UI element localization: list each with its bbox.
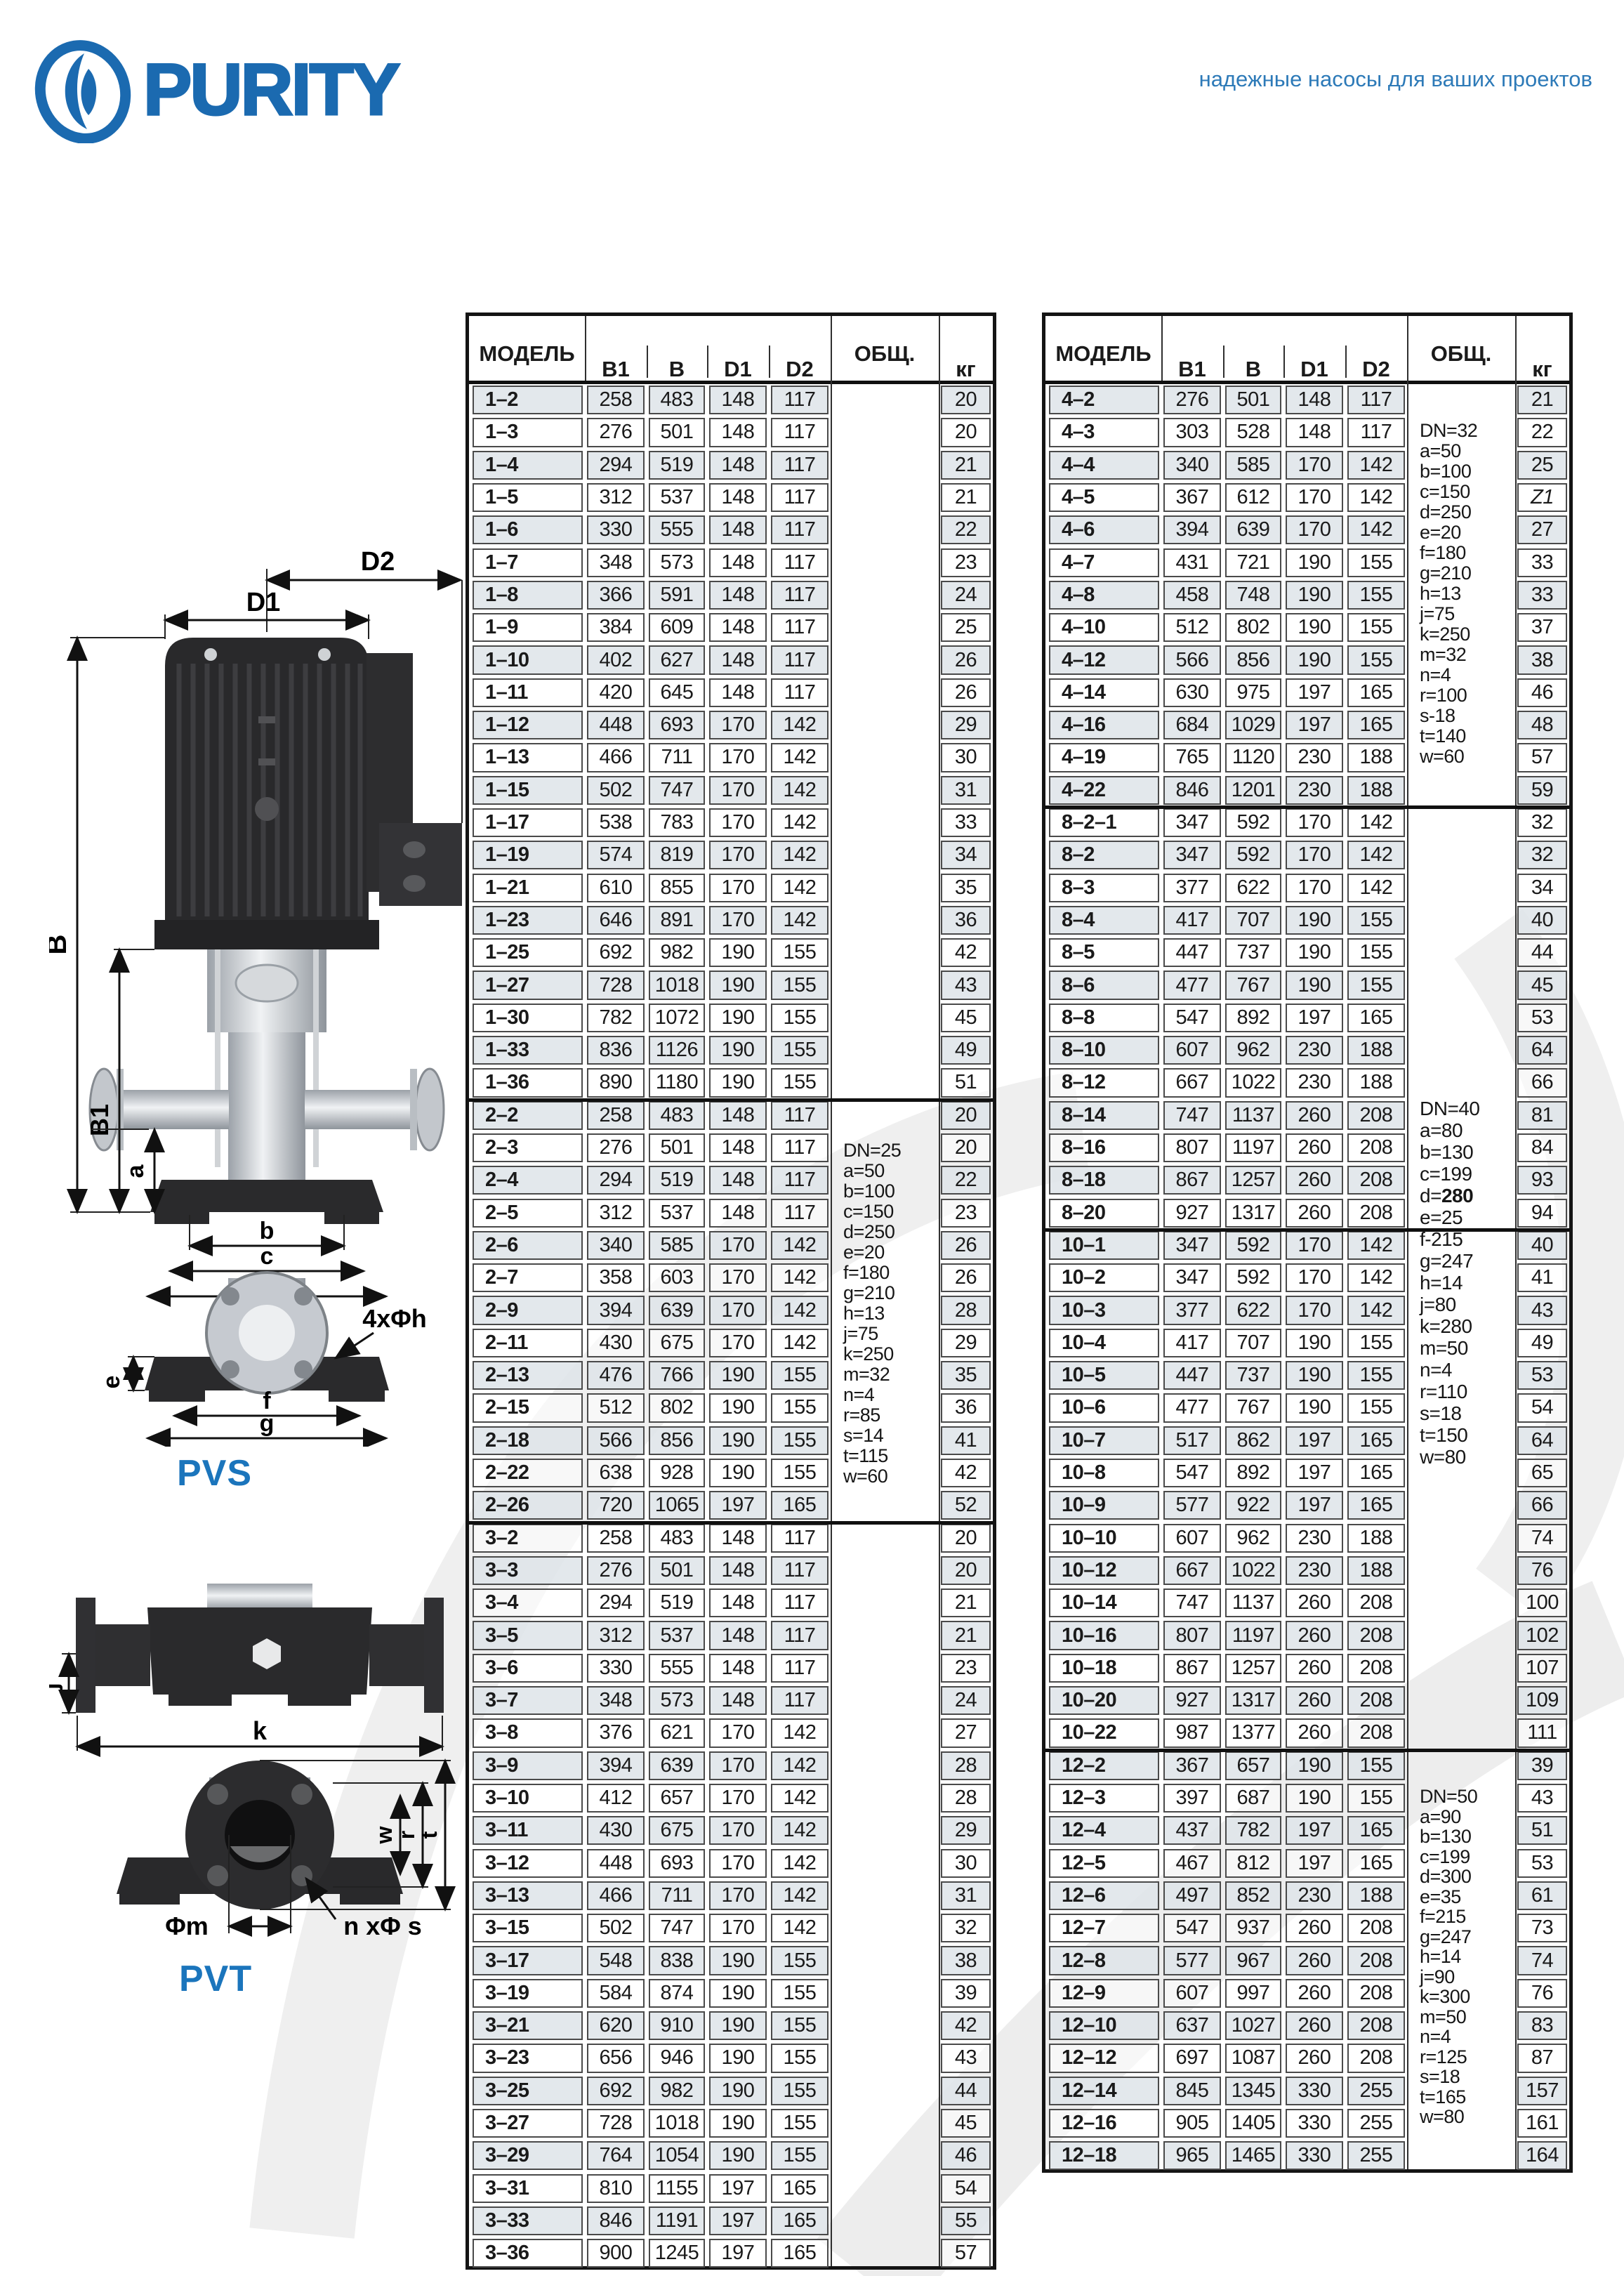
b-cell: 997 [1225,1979,1281,2008]
b-cell: 693 [649,1849,705,1878]
kg-cell: 30 [941,743,991,772]
kg-cell: 100 [1517,1588,1567,1617]
d1-cell: 260 [1286,1588,1343,1617]
b1-cell: 867 [1163,1654,1221,1683]
d1-cell: 260 [1286,1914,1343,1942]
model-cell: 2–3 [473,1133,583,1162]
d2-cell: 142 [771,1849,828,1878]
b1-cell: 577 [1163,1491,1221,1520]
b-cell: 928 [649,1459,705,1487]
d2-cell: 208 [1347,2011,1405,2040]
d1-cell: 148 [709,645,767,674]
model-cell: 8–14 [1049,1101,1159,1130]
kg-cell: 22 [1517,418,1567,447]
model-cell: 3–17 [473,1946,583,1975]
b-cell: 603 [649,1263,705,1292]
kg-cell: 51 [1517,1816,1567,1845]
model-cell: 1–5 [473,483,583,512]
kg-cell: 32 [1517,841,1567,869]
b1-cell: 347 [1163,1263,1221,1292]
dim-label-nxphis: n xΦ s [343,1912,422,1940]
d2-cell: 208 [1347,1588,1405,1617]
kg-cell: 37 [1517,613,1567,642]
b1-cell: 566 [1163,645,1221,674]
b-cell: 838 [649,1946,705,1975]
kg-cell: 55 [941,2206,991,2235]
b1-cell: 836 [587,1036,645,1065]
b1-cell: 340 [587,1231,645,1260]
b-cell: 1029 [1225,711,1281,739]
d2-cell: 117 [771,678,828,707]
d2-cell: 208 [1347,1133,1405,1162]
model-cell: 1–3 [473,418,583,447]
d2-cell: 155 [771,2141,828,2170]
b-cell: 483 [649,386,705,414]
model-cell: 3–21 [473,2011,583,2040]
model-cell: 4–14 [1049,678,1159,707]
b-cell: 501 [649,418,705,447]
d1-cell: 190 [1286,581,1343,610]
b-cell: 537 [649,1621,705,1650]
dim-label-d1: D1 [246,588,281,617]
d1-cell: 190 [709,2141,767,2170]
model-cell: 12–6 [1049,1881,1159,1910]
b-cell: 621 [649,1718,705,1747]
d1-cell: 190 [709,938,767,967]
b-cell: 483 [649,1524,705,1553]
d1-cell: 170 [709,1263,767,1292]
b1-cell: 394 [587,1751,645,1780]
d2-cell: 142 [771,743,828,772]
b1-cell: 447 [1163,1361,1221,1390]
dim-label-t: t [416,1831,442,1838]
b-cell: 555 [649,1654,705,1683]
d1-cell: 170 [709,1751,767,1780]
b-cell: 711 [649,743,705,772]
d1-cell: 190 [1286,938,1343,967]
b-cell: 1027 [1225,2011,1281,2040]
d2-cell: 188 [1347,776,1405,805]
b-cell: 721 [1225,548,1281,577]
col-header-kg: кг [939,357,993,382]
b1-cell: 347 [1163,808,1221,837]
b-cell: 975 [1225,678,1281,707]
b-cell: 1197 [1225,1621,1281,1650]
kg-cell: 27 [1517,515,1567,544]
b-cell: 1072 [649,1004,705,1032]
col-header-total: ОБЩ. [1407,341,1515,367]
d2-cell: 117 [771,386,828,414]
b-cell: 982 [649,2077,705,2105]
model-cell: 1–7 [473,548,583,577]
b-cell: 622 [1225,1296,1281,1324]
model-cell: 2–13 [473,1361,583,1390]
d2-cell: 165 [1347,1459,1405,1487]
kg-cell: 21 [941,483,991,512]
model-cell: 2–7 [473,1263,583,1292]
b1-cell: 502 [587,1914,645,1942]
dim-label-phi-m: Φm [165,1912,209,1940]
b-cell: 874 [649,1979,705,2008]
model-cell: 4–19 [1049,743,1159,772]
model-cell: 1–23 [473,906,583,935]
b-cell: 910 [649,2011,705,2040]
kg-cell: 20 [941,1101,991,1130]
kg-cell: 51 [941,1068,991,1097]
model-cell: 1–10 [473,645,583,674]
kg-cell: 84 [1517,1133,1567,1162]
b-cell: 592 [1225,808,1281,837]
b-cell: 1197 [1225,1133,1281,1162]
b-cell: 891 [649,906,705,935]
b1-cell: 258 [587,386,645,414]
b1-cell: 348 [587,548,645,577]
d1-cell: 170 [1286,1263,1343,1292]
d2-cell: 142 [1347,874,1405,902]
b-cell: 707 [1225,906,1281,935]
d2-cell: 117 [771,1556,828,1585]
model-cell: 2–4 [473,1166,583,1195]
d1-cell: 170 [709,906,767,935]
d1-cell: 170 [709,874,767,902]
d1-cell: 190 [709,2011,767,2040]
kg-cell: 54 [941,2174,991,2203]
d1-cell: 170 [709,841,767,869]
model-cell: 4–6 [1049,515,1159,544]
col-header-model: МОДЕЛЬ [469,341,585,367]
d2-cell: 155 [771,2109,828,2138]
d1-cell: 170 [1286,451,1343,480]
model-cell: 10–12 [1049,1556,1159,1585]
b1-cell: 258 [587,1524,645,1553]
d2-cell: 142 [1347,841,1405,869]
b1-cell: 466 [587,1881,645,1910]
d2-cell: 117 [771,1524,828,1553]
kg-cell: 28 [941,1751,991,1780]
kg-cell: 109 [1517,1686,1567,1715]
d1-cell: 330 [1286,2077,1343,2105]
d2-cell: 208 [1347,1946,1405,1975]
d2-cell: 142 [1347,1296,1405,1324]
d1-cell: 190 [1286,645,1343,674]
b-cell: 711 [649,1881,705,1910]
d1-cell: 148 [709,1654,767,1683]
kg-cell: 22 [941,515,991,544]
b-cell: 802 [649,1393,705,1422]
b1-cell: 728 [587,2109,645,2138]
model-cell: 3–11 [473,1816,583,1845]
b1-cell: 258 [587,1101,645,1130]
b-cell: 737 [1225,938,1281,967]
b1-cell: 448 [587,1849,645,1878]
b1-cell: 547 [1163,1004,1221,1032]
d1-cell: 148 [1286,386,1343,414]
b1-cell: 394 [1163,515,1221,544]
d2-cell: 155 [771,971,828,999]
b1-cell: 412 [587,1784,645,1813]
kg-cell: 53 [1517,1004,1567,1032]
model-cell: 2–22 [473,1459,583,1487]
b1-cell: 467 [1163,1849,1221,1878]
d2-cell: 117 [771,418,828,447]
d1-cell: 190 [1286,1784,1343,1813]
d2-cell: 142 [771,1296,828,1324]
model-cell: 10–5 [1049,1361,1159,1390]
b1-cell: 276 [587,1556,645,1585]
model-cell: 4–8 [1049,581,1159,610]
d1-cell: 190 [1286,548,1343,577]
b1-cell: 420 [587,678,645,707]
b-cell: 591 [649,581,705,610]
b1-cell: 276 [587,418,645,447]
kg-cell: 61 [1517,1881,1567,1910]
model-cell: 4–7 [1049,548,1159,577]
d1-cell: 170 [1286,874,1343,902]
section-separator [1045,1749,1569,1752]
kg-cell: 21 [941,451,991,480]
model-cell: 1–21 [473,874,583,902]
d2-cell: 142 [771,1231,828,1260]
model-cell: 3–25 [473,2077,583,2105]
kg-cell: 66 [1517,1491,1567,1520]
d2-cell: 208 [1347,1686,1405,1715]
b1-cell: 574 [587,841,645,869]
model-cell: 2–26 [473,1491,583,1520]
d2-cell: 165 [1347,1849,1405,1878]
d2-cell: 155 [771,2044,828,2072]
col-header-b1: B1 [585,357,647,382]
model-cell: 8–16 [1049,1133,1159,1162]
kg-cell: 27 [941,1718,991,1747]
b1-cell: 692 [587,938,645,967]
model-cell: 1–30 [473,1004,583,1032]
d2-cell: 142 [1347,515,1405,544]
kg-cell: 33 [941,808,991,837]
model-cell: 4–2 [1049,386,1159,414]
model-cell: 12–14 [1049,2077,1159,2105]
b-cell: 592 [1225,1231,1281,1260]
b-cell: 1022 [1225,1556,1281,1585]
model-cell: 3–5 [473,1621,583,1650]
b1-cell: 348 [587,1686,645,1715]
d1-cell: 170 [709,1881,767,1910]
b-cell: 982 [649,938,705,967]
d1-cell: 148 [709,483,767,512]
model-cell: 3–31 [473,2174,583,2203]
d1-cell: 260 [1286,1686,1343,1715]
d1-cell: 197 [1286,1004,1343,1032]
d2-cell: 155 [1347,645,1405,674]
b-cell: 766 [649,1361,705,1390]
model-cell: 3–2 [473,1524,583,1553]
d1-cell: 190 [709,1068,767,1097]
d1-cell: 197 [1286,1459,1343,1487]
d2-cell: 155 [771,1946,828,1975]
model-cell: 4–3 [1049,418,1159,447]
model-cell: 8–5 [1049,938,1159,967]
d2-cell: 155 [1347,1329,1405,1357]
model-cell: 10–10 [1049,1524,1159,1553]
b1-cell: 276 [1163,386,1221,414]
d2-cell: 155 [1347,1784,1405,1813]
d2-cell: 142 [771,711,828,739]
b1-cell: 303 [1163,418,1221,447]
b-cell: 573 [649,548,705,577]
d2-cell: 155 [771,2011,828,2040]
d2-cell: 117 [771,515,828,544]
b1-cell: 312 [587,1199,645,1228]
d2-cell: 208 [1347,1621,1405,1650]
d1-cell: 260 [1286,1166,1343,1195]
kg-cell: 57 [1517,743,1567,772]
d1-cell: 260 [1286,2044,1343,2072]
kg-cell: 52 [941,1491,991,1520]
d1-cell: 190 [1286,1751,1343,1780]
kg-cell: 34 [1517,874,1567,902]
kg-cell: 73 [1517,1914,1567,1942]
d1-cell: 260 [1286,1979,1343,2008]
model-cell: 3–3 [473,1556,583,1585]
b1-cell: 987 [1163,1718,1221,1747]
b-cell: 856 [649,1426,705,1455]
model-cell: 1–9 [473,613,583,642]
model-cell: 10–8 [1049,1459,1159,1487]
b1-cell: 402 [587,645,645,674]
b1-cell: 846 [1163,776,1221,805]
kg-cell: 26 [941,1231,991,1260]
d2-cell: 117 [771,1199,828,1228]
d1-cell: 190 [1286,1329,1343,1357]
b1-cell: 890 [587,1068,645,1097]
b1-cell: 430 [587,1329,645,1357]
b1-cell: 927 [1163,1686,1221,1715]
b-cell: 1257 [1225,1654,1281,1683]
d1-cell: 260 [1286,1133,1343,1162]
b-cell: 693 [649,711,705,739]
d2-cell: 117 [771,645,828,674]
section-separator [469,1521,993,1525]
kg-cell: 46 [1517,678,1567,707]
d2-cell: 155 [1347,581,1405,610]
model-cell: 8–10 [1049,1036,1159,1065]
d2-cell: 142 [1347,1231,1405,1260]
model-cell: 10–16 [1049,1621,1159,1650]
b1-cell: 431 [1163,548,1221,577]
d2-cell: 165 [1347,1426,1405,1455]
b1-cell: 340 [1163,451,1221,480]
b1-cell: 846 [587,2206,645,2235]
d2-cell: 142 [771,1816,828,1845]
dim-label-c: c [260,1243,274,1270]
kg-cell: 53 [1517,1849,1567,1878]
kg-cell: 31 [941,776,991,805]
kg-cell: 45 [941,1004,991,1032]
kg-cell: 29 [941,1329,991,1357]
b1-cell: 764 [587,2141,645,2170]
b-cell: 862 [1225,1426,1281,1455]
kg-cell: 43 [1517,1784,1567,1813]
d1-cell: 148 [709,1556,767,1585]
kg-cell: 43 [941,2044,991,2072]
d2-cell: 208 [1347,1979,1405,2008]
b1-cell: 417 [1163,1329,1221,1357]
kg-cell: 20 [941,1524,991,1553]
model-cell: 3–13 [473,1881,583,1910]
b-cell: 519 [649,1588,705,1617]
d2-cell: 255 [1347,2077,1405,2105]
kg-cell: 43 [1517,1296,1567,1324]
d2-cell: 188 [1347,1524,1405,1553]
kg-cell: 42 [941,938,991,967]
b-cell: 1137 [1225,1101,1281,1130]
kg-cell: 41 [941,1426,991,1455]
d2-cell: 117 [771,548,828,577]
b1-cell: 497 [1163,1881,1221,1910]
b1-cell: 720 [587,1491,645,1520]
d2-cell: 117 [771,1133,828,1162]
b-cell: 537 [649,483,705,512]
kg-cell: 20 [941,418,991,447]
model-cell: 1–2 [473,386,583,414]
kg-cell: 164 [1517,2141,1567,2170]
model-cell: 4–5 [1049,483,1159,512]
d1-cell: 190 [709,1393,767,1422]
shared-dims-note-dn25: DN=25a=50b=100c=150d=250e=20f=180g=210h=… [843,1141,901,1487]
model-cell: 10–3 [1049,1296,1159,1324]
b-cell: 627 [649,645,705,674]
b-cell: 622 [1225,874,1281,902]
b1-cell: 367 [1163,483,1221,512]
b1-cell: 437 [1163,1816,1221,1845]
b-cell: 812 [1225,1849,1281,1878]
col-header-d1: D1 [707,357,769,382]
d1-cell: 190 [709,2077,767,2105]
d1-cell: 190 [1286,1361,1343,1390]
model-cell: 2–9 [473,1296,583,1324]
model-cell: 1–4 [473,451,583,480]
d1-cell: 148 [709,1166,767,1195]
dim-label-k: k [253,1716,268,1745]
model-cell: 10–4 [1049,1329,1159,1357]
b-cell: 1126 [649,1036,705,1065]
kg-cell: 39 [1517,1751,1567,1780]
b1-cell: 330 [587,1654,645,1683]
kg-cell: 34 [941,841,991,869]
b-cell: 528 [1225,418,1281,447]
d1-cell: 230 [1286,1524,1343,1553]
d2-cell: 117 [1347,418,1405,447]
pvs-label: PVS [177,1452,252,1494]
b-cell: 537 [649,1199,705,1228]
col-header-kg: кг [1515,357,1569,382]
model-cell: 1–27 [473,971,583,999]
model-cell: 4–22 [1049,776,1159,805]
d2-cell: 155 [1347,938,1405,967]
model-cell: 1–8 [473,581,583,610]
dim-label-a: a [122,1164,149,1178]
model-cell: 3–23 [473,2044,583,2072]
b1-cell: 638 [587,1459,645,1487]
d1-cell: 190 [1286,906,1343,935]
model-cell: 8–8 [1049,1004,1159,1032]
kg-cell: 31 [941,1881,991,1910]
model-cell: 1–36 [473,1068,583,1097]
d2-cell: 208 [1347,1101,1405,1130]
b1-cell: 697 [1163,2044,1221,2072]
d2-cell: 208 [1347,1654,1405,1683]
model-cell: 10–20 [1049,1686,1159,1715]
d1-cell: 148 [709,1621,767,1650]
